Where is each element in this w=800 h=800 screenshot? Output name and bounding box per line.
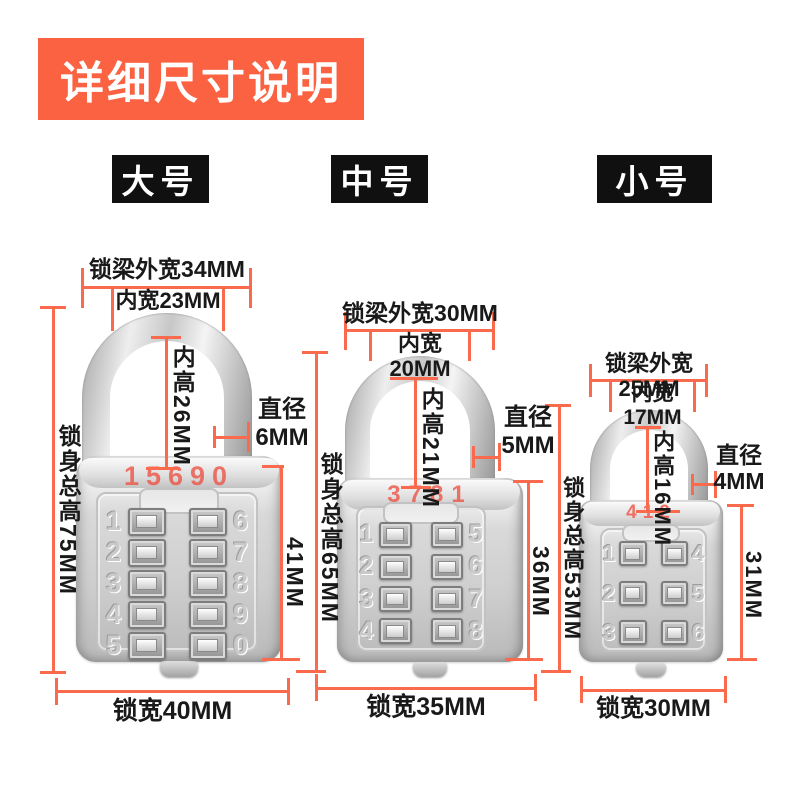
digit-label: 2 bbox=[357, 552, 376, 581]
dim-diameter-label: 直径 6MM bbox=[252, 396, 312, 451]
push-button bbox=[128, 570, 166, 598]
push-button bbox=[379, 618, 412, 644]
dim-tick bbox=[691, 474, 694, 495]
digit-label: 6 bbox=[690, 619, 706, 646]
lock-body: 15690 1627384950 bbox=[76, 456, 282, 662]
dim-tick bbox=[247, 422, 250, 452]
digit-label: 6 bbox=[466, 552, 485, 581]
dim-tick bbox=[296, 670, 326, 673]
dim-total-height-label: 锁身总高53MM bbox=[561, 476, 584, 641]
digit-label: 3 bbox=[103, 568, 125, 599]
size-tab-large: 大号 bbox=[112, 155, 209, 203]
dim-front-height-label: 31MM bbox=[742, 551, 765, 620]
dim-tick bbox=[505, 658, 543, 661]
push-button bbox=[128, 601, 166, 629]
keypad: 1627384950 bbox=[98, 506, 256, 650]
push-button bbox=[128, 632, 166, 660]
dim-line-inner-height bbox=[165, 337, 168, 469]
digit-label: 5 bbox=[690, 580, 706, 607]
dim-line-inner-height bbox=[646, 427, 649, 512]
dim-tick bbox=[262, 465, 284, 468]
digit-label: 3 bbox=[601, 619, 617, 646]
keypad-row: 27 bbox=[98, 537, 256, 568]
dim-tick bbox=[727, 658, 757, 661]
dim-tick bbox=[513, 480, 543, 483]
digit-label: 4 bbox=[357, 617, 376, 646]
keypad-row: 48 bbox=[357, 617, 485, 646]
diameter-word: 直径 bbox=[504, 404, 552, 431]
dim-inner-height-label: 内高21MM bbox=[419, 387, 443, 509]
dim-inner-width-label: 内宽20MM bbox=[370, 331, 470, 382]
push-button bbox=[431, 618, 464, 644]
dim-inner-height-label: 内高26MM bbox=[170, 345, 194, 467]
push-button bbox=[379, 522, 412, 548]
dim-tick bbox=[302, 351, 328, 354]
diameter-word: 直径 bbox=[258, 396, 306, 423]
dim-lock-width-label: 锁宽40MM bbox=[55, 697, 290, 726]
dim-diameter-label: 直径 4MM bbox=[712, 442, 766, 495]
dim-line-lock-width bbox=[315, 687, 537, 690]
push-button bbox=[189, 539, 227, 567]
dim-tick bbox=[146, 467, 180, 470]
dim-tick bbox=[727, 504, 754, 507]
dim-line-inner-height bbox=[414, 378, 417, 488]
dim-tick bbox=[262, 658, 300, 661]
dim-tick bbox=[40, 671, 66, 674]
push-button bbox=[619, 581, 647, 606]
digit-label: 8 bbox=[230, 568, 252, 599]
digit-label: 0 bbox=[230, 630, 252, 661]
dim-total-height-label: 锁身总高75MM bbox=[56, 424, 80, 596]
digit-label: 4 bbox=[690, 540, 706, 567]
push-button bbox=[431, 586, 464, 612]
digit-label: 5 bbox=[103, 630, 125, 661]
keypad-row: 26 bbox=[357, 552, 485, 581]
dim-line-lock-width bbox=[55, 690, 290, 693]
digit-label: 7 bbox=[466, 585, 485, 614]
keypad-row: 50 bbox=[98, 630, 256, 661]
digit-label: 6 bbox=[230, 506, 252, 537]
diameter-value: 4MM bbox=[713, 468, 764, 494]
dim-lock-width-label: 锁宽30MM bbox=[580, 695, 727, 723]
diameter-word: 直径 bbox=[716, 442, 762, 468]
push-button bbox=[189, 570, 227, 598]
size-tab-medium: 中号 bbox=[331, 155, 428, 203]
keypad-row: 16 bbox=[98, 506, 256, 537]
push-button bbox=[189, 632, 227, 660]
digit-label: 5 bbox=[466, 520, 485, 549]
digit-label: 4 bbox=[103, 599, 125, 630]
dim-inner-height-label: 内高16MM bbox=[651, 430, 674, 547]
digit-label: 3 bbox=[357, 585, 376, 614]
bottom-button bbox=[413, 662, 447, 677]
dim-tick bbox=[213, 426, 216, 448]
dim-tick bbox=[213, 436, 249, 439]
bottom-button bbox=[636, 663, 666, 677]
dim-tick bbox=[472, 446, 475, 468]
dim-inner-width-label: 内宽17MM bbox=[610, 382, 695, 430]
dim-diameter-label: 直径 5MM bbox=[500, 404, 556, 459]
keypad-row: 37 bbox=[357, 585, 485, 614]
push-button bbox=[661, 620, 689, 645]
digit-label: 8 bbox=[466, 617, 485, 646]
dim-tick bbox=[541, 670, 571, 673]
keypad-row: 38 bbox=[98, 568, 256, 599]
push-button bbox=[189, 601, 227, 629]
diameter-value: 6MM bbox=[255, 424, 308, 451]
dim-shackle-outer-label: 锁梁外宽34MM bbox=[72, 256, 262, 282]
digit-label: 2 bbox=[601, 580, 617, 607]
push-button bbox=[379, 554, 412, 580]
size-tab-small: 小号 bbox=[597, 155, 712, 203]
digit-label: 1 bbox=[103, 506, 125, 537]
dim-front-height-label: 41MM bbox=[283, 537, 307, 609]
diameter-value: 5MM bbox=[501, 432, 554, 459]
push-button bbox=[379, 586, 412, 612]
keypad: 142536 bbox=[601, 540, 706, 646]
dim-lock-width-label: 锁宽35MM bbox=[315, 693, 537, 722]
digit-label: 7 bbox=[230, 537, 252, 568]
keypad-row: 25 bbox=[601, 580, 706, 607]
push-button bbox=[189, 508, 227, 536]
digit-label: 1 bbox=[601, 540, 617, 567]
dim-tick bbox=[40, 306, 66, 309]
digit-label: 2 bbox=[103, 537, 125, 568]
digit-label: 1 bbox=[357, 520, 376, 549]
dim-tick bbox=[151, 336, 181, 339]
bottom-button bbox=[160, 661, 198, 677]
keypad-row: 15 bbox=[357, 520, 485, 549]
dim-tick bbox=[472, 456, 500, 459]
push-button bbox=[128, 508, 166, 536]
dim-total-height-label: 锁身总高65MM bbox=[318, 452, 342, 624]
push-button bbox=[431, 554, 464, 580]
push-button bbox=[619, 541, 647, 566]
keypad-row: 49 bbox=[98, 599, 256, 630]
dim-line-lock-width bbox=[580, 689, 727, 692]
push-button bbox=[661, 581, 689, 606]
push-button bbox=[128, 539, 166, 567]
push-button bbox=[619, 620, 647, 645]
title-banner: 详细尺寸说明 bbox=[38, 38, 364, 120]
dim-shackle-outer-label: 锁梁外宽30MM bbox=[335, 300, 505, 326]
dim-inner-width-label: 内宽23MM bbox=[112, 288, 224, 313]
push-button bbox=[431, 522, 464, 548]
keypad: 15263748 bbox=[357, 520, 485, 646]
dim-front-height-label: 36MM bbox=[529, 546, 553, 618]
keypad-row: 36 bbox=[601, 619, 706, 646]
digit-label: 9 bbox=[230, 599, 252, 630]
